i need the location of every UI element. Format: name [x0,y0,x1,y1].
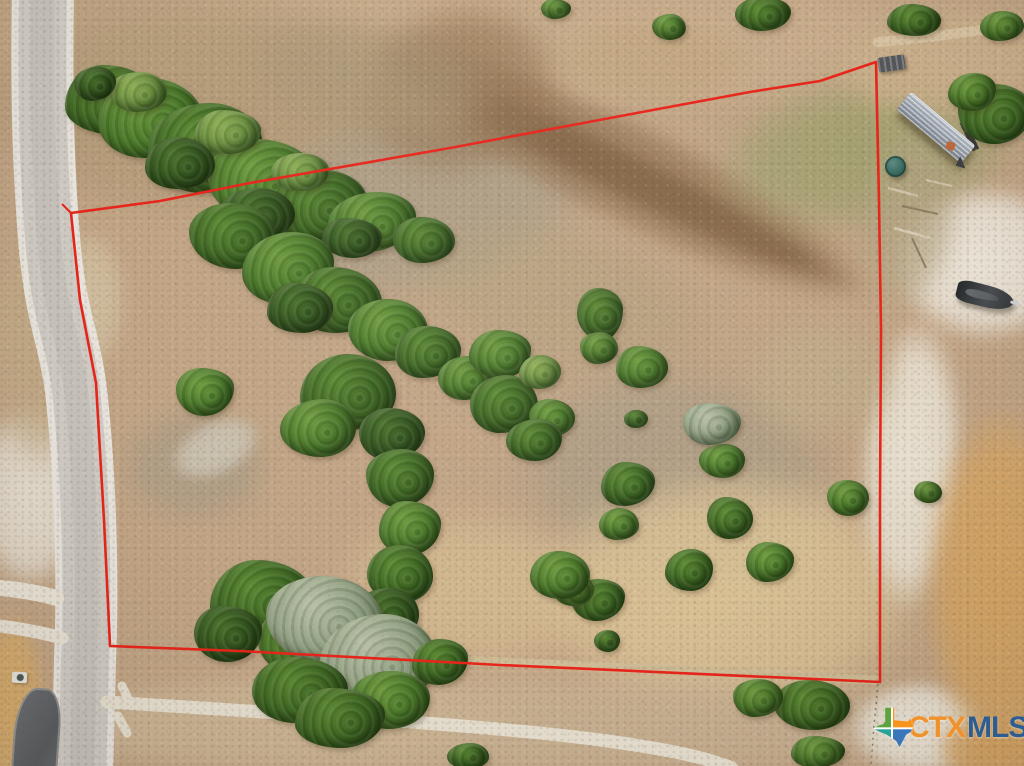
property-boundary-overlay [0,0,1024,766]
boundary-corner-tick [62,204,71,213]
texas-logo-icon [872,707,914,749]
boundary-polygon [71,62,881,682]
watermark-ctx-text: CTX [908,713,965,743]
texas-quadrant-teal [872,729,891,749]
watermark-mls-text: MLS [967,713,1024,743]
texas-quadrant-blue [893,729,914,749]
aerial-photo: CTX MLS [0,0,1024,766]
texas-quadrant-green [872,707,891,727]
texas-quadrant-orange [893,707,914,727]
ctxmls-watermark: CTX MLS [872,707,1024,749]
